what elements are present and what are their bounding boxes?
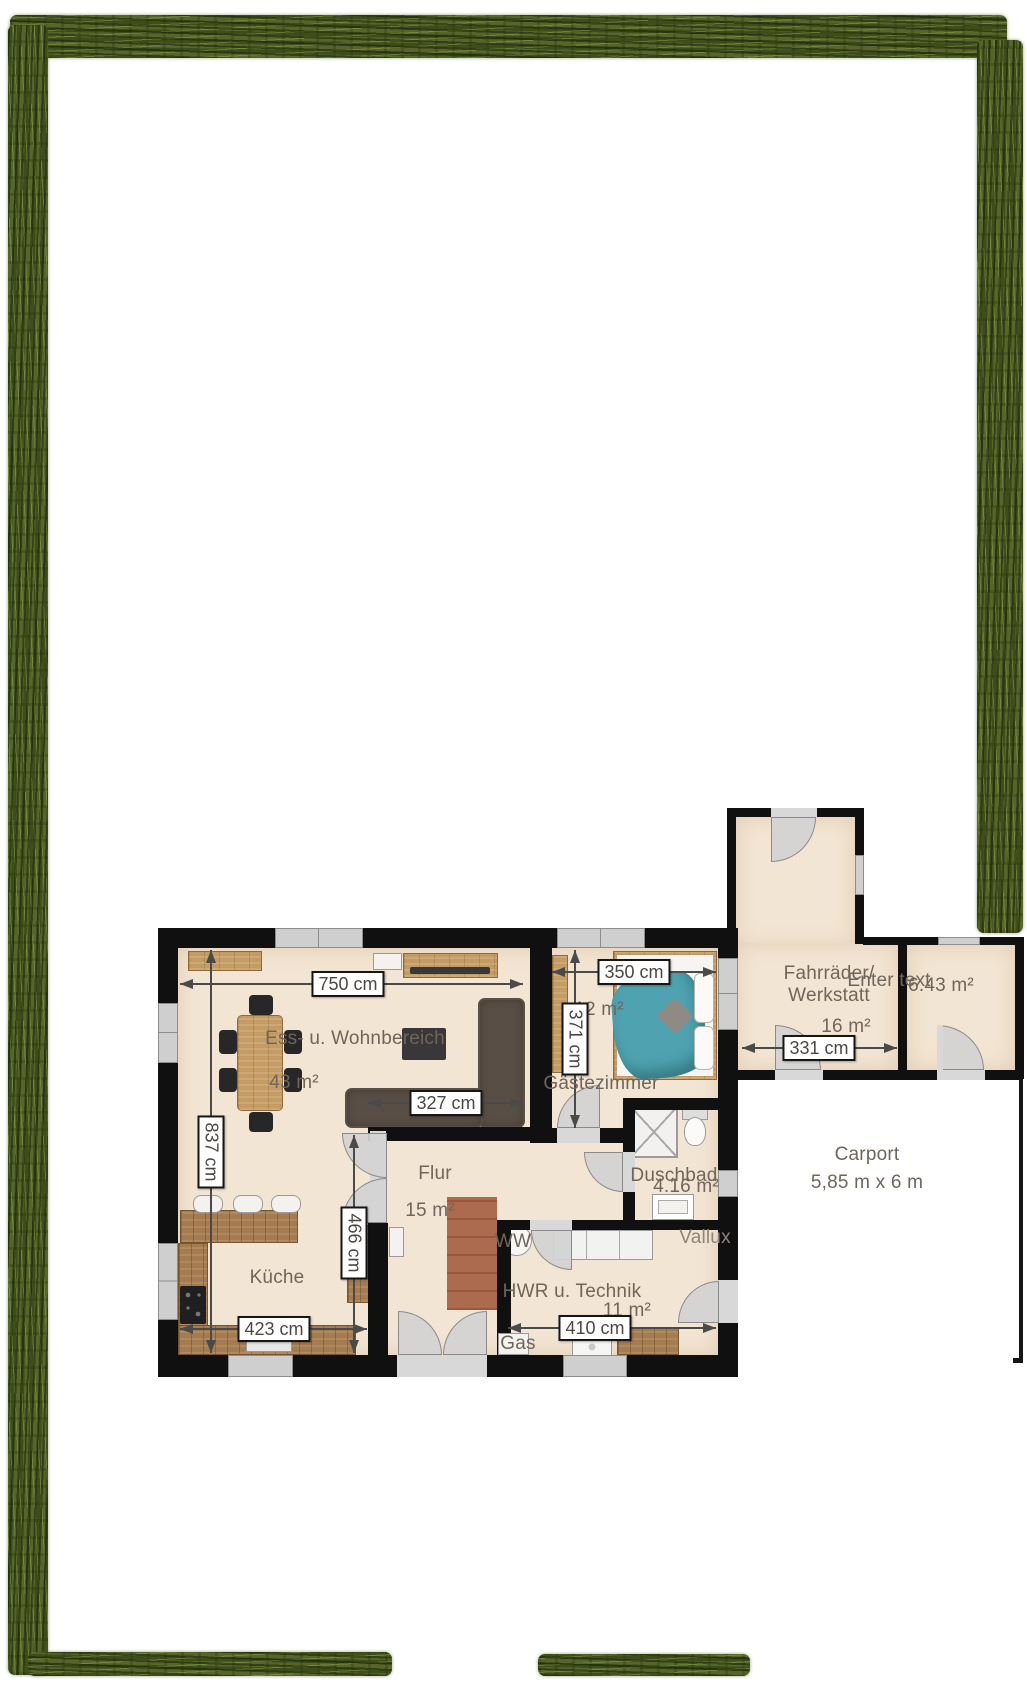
area-label-nebenraum[interactable]: 6.43 m²: [908, 975, 974, 997]
area-label-wohnbereich[interactable]: 43 m²: [269, 1072, 319, 1094]
sofa-chaise[interactable]: [478, 998, 525, 1128]
door-opening-guest[interactable]: [557, 1128, 600, 1143]
hedge-left[interactable]: [8, 25, 48, 1675]
wall-living-flur[interactable]: [368, 1127, 532, 1141]
cooktop[interactable]: [180, 1286, 206, 1324]
sideboard[interactable]: [188, 951, 262, 971]
dim-label-466[interactable]: 466 cm: [341, 1206, 368, 1279]
door-opening-werkstatt-top[interactable]: [771, 808, 817, 817]
bed-pillow: [694, 973, 714, 1023]
dim-label-327[interactable]: 327 cm: [409, 1090, 482, 1116]
door-opening-werkstatt-bottom[interactable]: [775, 1070, 823, 1080]
wall-duschbad-top[interactable]: [623, 1098, 718, 1110]
room-label-wohnbereich[interactable]: Ess- u. Wohnbereich: [265, 1028, 445, 1050]
door-opening-entrance[interactable]: [397, 1355, 487, 1377]
dim-label-331[interactable]: 331 cm: [782, 1035, 855, 1061]
floor-carport[interactable]: [738, 1078, 1019, 1363]
dim-label-410[interactable]: 410 cm: [558, 1315, 631, 1341]
toilet-bowl: [684, 1117, 706, 1146]
hedge-bottom-east[interactable]: [538, 1654, 750, 1676]
door-opening-hwr-carport[interactable]: [718, 1280, 738, 1323]
bed-pillow: [694, 1026, 714, 1070]
window-guest-right[interactable]: [718, 958, 738, 1030]
room-label-gaestezimmer[interactable]: Gästezimmer: [543, 1073, 658, 1095]
dim-label-423[interactable]: 423 cm: [237, 1316, 310, 1342]
wall-living-guest[interactable]: [530, 948, 552, 1140]
dining-chair[interactable]: [249, 1112, 273, 1132]
bar-stool[interactable]: [233, 1195, 263, 1213]
bar-stool[interactable]: [193, 1195, 223, 1213]
tv-screen: [410, 967, 490, 974]
hedge-bottom-west[interactable]: [28, 1652, 392, 1676]
window-guest-top[interactable]: [557, 928, 645, 948]
window-nebenraum-top[interactable]: [938, 937, 980, 945]
tv-panel[interactable]: [373, 953, 402, 970]
dining-chair[interactable]: [249, 995, 273, 1015]
door-opening-nebenraum-bottom[interactable]: [937, 1070, 985, 1080]
window-duschbad-right[interactable]: [718, 1170, 738, 1197]
hedge-top[interactable]: [10, 15, 1007, 58]
bar-stool[interactable]: [271, 1195, 301, 1213]
window-kitchen-left[interactable]: [158, 1243, 178, 1320]
carport-corner-line: [1013, 1358, 1023, 1363]
window-living-top[interactable]: [275, 928, 363, 948]
size-label-carport[interactable]: 5,85 m x 6 m: [811, 1172, 923, 1194]
carport-right-line[interactable]: [1019, 1080, 1023, 1363]
dim-label-837[interactable]: 837 cm: [198, 1115, 225, 1188]
shower[interactable]: [630, 1106, 678, 1158]
window-werkstatt-right[interactable]: [855, 855, 864, 895]
window-kitchen-bottom[interactable]: [228, 1355, 293, 1377]
floorplan-canvas[interactable]: 750 cm 837 cm 327 cm 466 cm 350 cm 371 c…: [0, 0, 1027, 1700]
window-hwr-bottom[interactable]: [563, 1355, 627, 1377]
dining-chair[interactable]: [219, 1068, 237, 1092]
dim-label-350[interactable]: 350 cm: [597, 959, 670, 985]
wall-kueche-flur[interactable]: [368, 1223, 388, 1355]
door-leaf-nebenraum: [937, 1025, 943, 1075]
annotation-ww[interactable]: WW: [495, 1231, 531, 1253]
hallway-cabinet[interactable]: [389, 1227, 404, 1257]
dim-label-750[interactable]: 750 cm: [311, 971, 384, 997]
room-label-carport[interactable]: Carport: [835, 1144, 900, 1166]
annotation-gas[interactable]: Gas: [500, 1333, 535, 1355]
room-label-flur[interactable]: Flur: [418, 1163, 452, 1185]
area-label-flur[interactable]: 15 m²: [405, 1200, 455, 1222]
door-opening-hwr[interactable]: [530, 1220, 572, 1230]
dining-chair[interactable]: [219, 1030, 237, 1054]
area-label-duschbad[interactable]: 4.16 m²: [653, 1176, 719, 1198]
annotation-vallux[interactable]: Vallux: [679, 1227, 731, 1249]
wall-nebenraum-right[interactable]: [1015, 937, 1024, 1079]
window-living-left[interactable]: [158, 1003, 178, 1063]
wall-werkstatt-left[interactable]: [727, 808, 736, 933]
room-label-kueche[interactable]: Küche: [250, 1267, 305, 1289]
dim-label-371[interactable]: 371 cm: [562, 1002, 589, 1075]
wall-main-top[interactable]: [158, 928, 735, 948]
kitchen-bar-counter[interactable]: [180, 1210, 298, 1243]
tv-lowboard[interactable]: [403, 953, 498, 978]
wall-nebenraum-divider[interactable]: [898, 943, 907, 1071]
hedge-right[interactable]: [977, 40, 1023, 933]
